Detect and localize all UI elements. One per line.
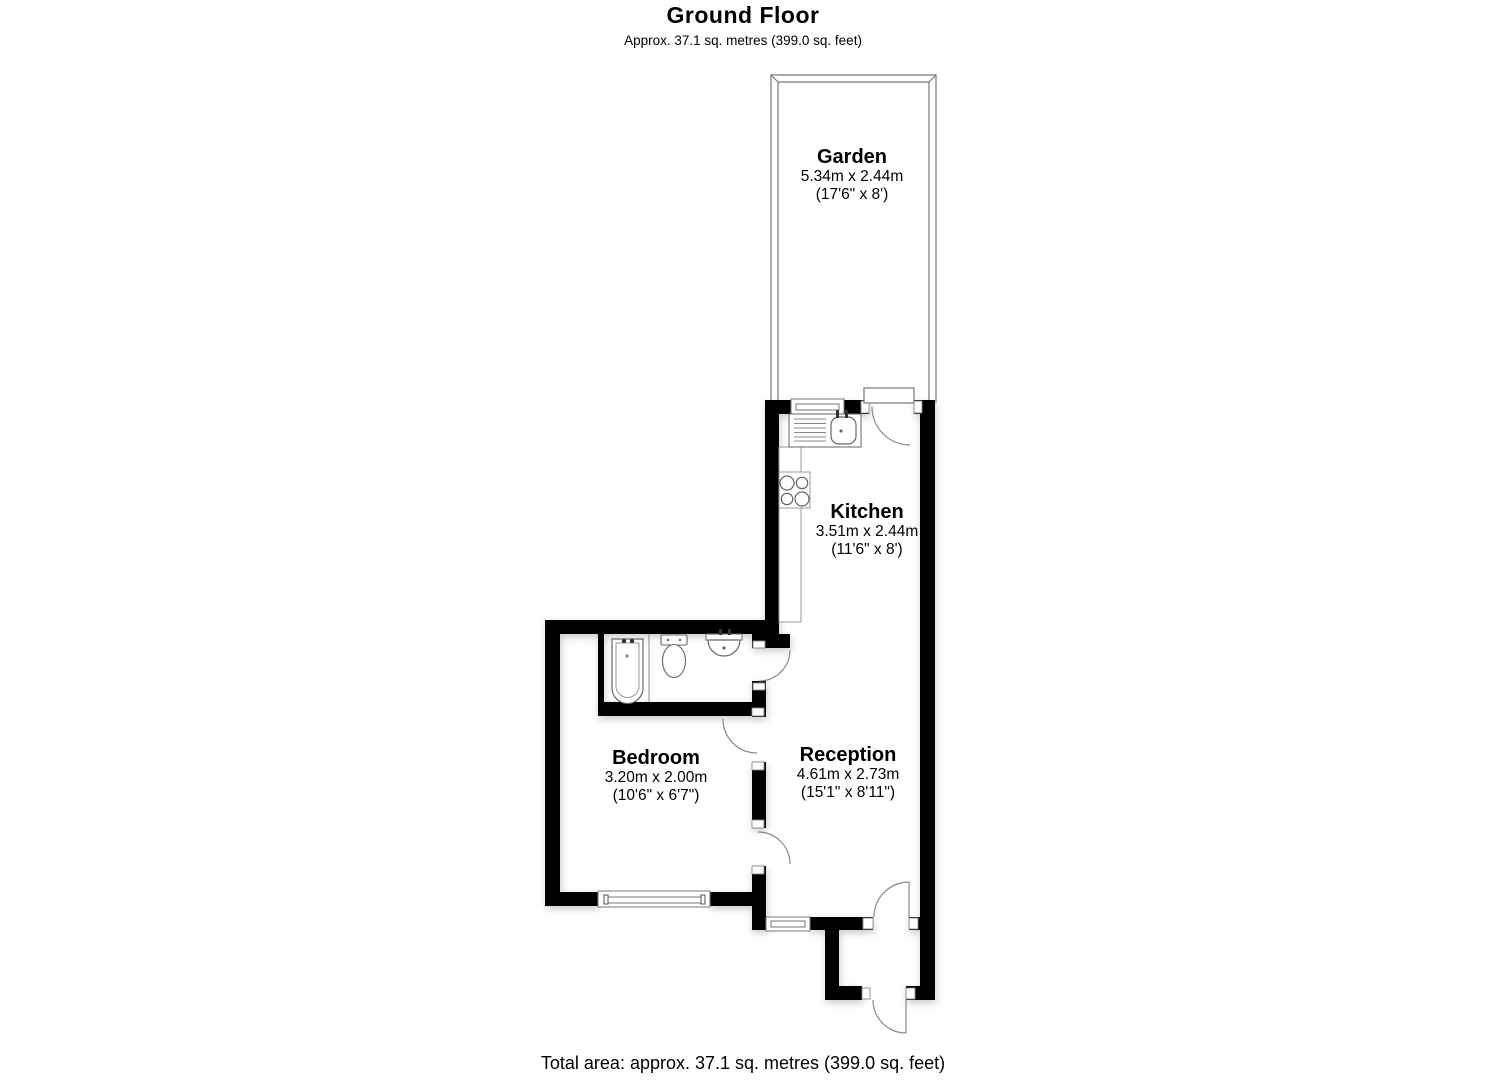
room-name: Reception [797, 745, 900, 766]
toilet-button-icon [667, 639, 669, 641]
wall-segment [598, 634, 604, 712]
reception-window [766, 917, 810, 931]
bathroom-door-arc [759, 650, 790, 681]
basin-drain-icon [722, 646, 725, 649]
room-dim-imperial: (11'6" x 8') [816, 541, 919, 559]
door-jamb [752, 866, 764, 874]
window-tick [701, 895, 705, 904]
garden-fence-outer [771, 75, 936, 403]
garden-fence-inner [778, 82, 929, 403]
room-dim-imperial: (10'6" x 6'7") [605, 787, 708, 805]
wall-segment [752, 762, 766, 828]
basin-ledge [706, 634, 742, 640]
room-dim-metric: 3.20m x 2.00m [605, 769, 708, 787]
room-dim-metric: 4.61m x 2.73m [797, 766, 900, 784]
front-door-arc [873, 1000, 906, 1033]
room-name: Garden [801, 147, 904, 168]
wall-segment [825, 986, 862, 1000]
sink-drain-icon [839, 429, 842, 432]
window-glass [796, 404, 839, 410]
door-jamb [863, 918, 873, 929]
garden-fence-miter [771, 75, 936, 82]
basin-tap-icon [728, 629, 731, 635]
door-jamb [752, 762, 764, 770]
kitchen-label: Kitchen 3.51m x 2.44m (11'6" x 8') [816, 502, 919, 558]
door-jamb [752, 708, 764, 716]
garden-door-arc [872, 407, 910, 445]
garden-label: Garden 5.34m x 2.44m (17'6" x 8') [801, 147, 904, 203]
garden-door-leaf [864, 388, 914, 403]
toilet-button-icon [679, 639, 681, 641]
sink-tap-icon [836, 410, 839, 418]
bath-drain-icon [625, 654, 628, 657]
wall-segment [765, 400, 779, 648]
door-jamb [753, 641, 765, 648]
hob-ring-icon [780, 476, 794, 490]
walls [545, 400, 935, 1000]
reception-door-arc [758, 832, 790, 864]
window-glass [605, 897, 705, 903]
floorplan-page: Ground Floor Approx. 37.1 sq. metres (39… [0, 0, 1486, 1080]
room-name: Kitchen [816, 502, 919, 523]
bathroom-fixtures [612, 629, 742, 704]
reception-label: Reception 4.61m x 2.73m (15'1" x 8'11") [797, 745, 900, 801]
wall-segment [598, 702, 762, 716]
window-glass [771, 921, 805, 927]
hall-door-arc [874, 882, 909, 917]
sink-bowl-icon [831, 417, 856, 444]
basin-tap-icon [719, 629, 722, 635]
door-jamb [753, 683, 765, 690]
hob-ring-icon [795, 492, 809, 506]
door-jamb [914, 401, 922, 413]
bedroom-window [598, 891, 710, 907]
sink-tap-icon [845, 410, 848, 418]
wall-segment [545, 620, 560, 906]
hob-ring-icon [796, 477, 807, 488]
floorplan-drawing [0, 0, 1486, 1080]
bath-tap-icon [630, 639, 634, 643]
bedroom-label: Bedroom 3.20m x 2.00m (10'6" x 6'7") [605, 748, 708, 804]
wall-segment [545, 620, 779, 634]
window-tick [604, 895, 608, 904]
door-jamb [909, 918, 918, 929]
door-jamb [862, 988, 870, 999]
bedroom-door-arc [723, 719, 757, 753]
total-area-text: Total area: approx. 37.1 sq. metres (399… [0, 1053, 1486, 1074]
door-jamb [906, 988, 915, 999]
wall-segment [545, 892, 598, 906]
room-dim-metric: 3.51m x 2.44m [816, 523, 919, 541]
room-dim-metric: 5.34m x 2.44m [801, 168, 904, 186]
room-dim-imperial: (15'1" x 8'11") [797, 784, 900, 802]
toilet-bowl-icon [663, 645, 686, 678]
bath-icon [612, 639, 643, 704]
room-dim-imperial: (17'6" x 8') [801, 186, 904, 204]
wall-segment [920, 400, 935, 1000]
bath-tap-icon [622, 639, 626, 643]
toilet-cistern-icon [661, 635, 687, 645]
garden-fence [771, 75, 936, 403]
room-name: Bedroom [605, 748, 708, 769]
hob-ring-icon [781, 493, 792, 504]
door-jamb [752, 820, 764, 828]
